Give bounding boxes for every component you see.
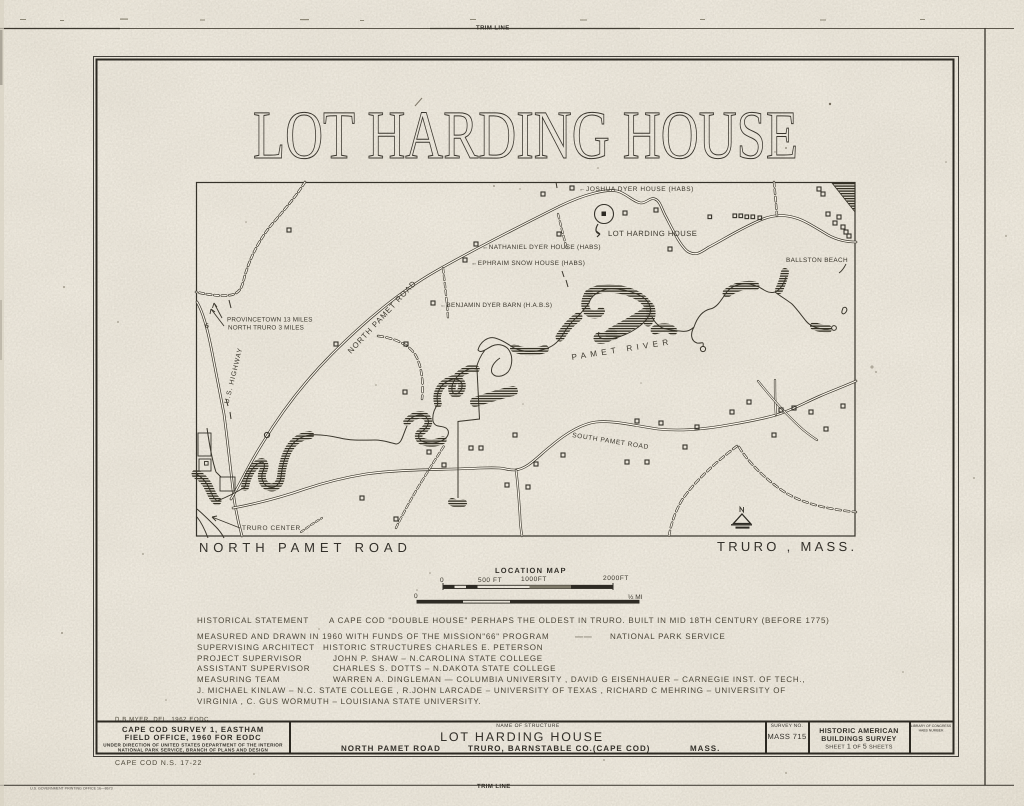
svg-text:BUILDINGS SURVEY: BUILDINGS SURVEY [821,736,897,743]
svg-text:VIRGINIA , C. GUS WORMUTH –: VIRGINIA , C. GUS WORMUTH – LOUISIANA ST… [197,697,481,706]
svg-text:HABS NUMBER: HABS NUMBER [919,729,944,733]
svg-text:0: 0 [440,577,444,584]
svg-text:TRURO, BARNSTABLE CO.(CAPE CO: TRURO, BARNSTABLE CO.(CAPE COD) [468,744,650,753]
svg-text:CAPE COD N.S. 17-22: CAPE COD N.S. 17-22 [115,760,202,767]
svg-text:J. MICHAEL KINLAW – N.C. STATE: J. MICHAEL KINLAW – N.C. STATE COLLEGE ,… [197,686,786,695]
svg-text:TRURO , MASS.: TRURO , MASS. [717,539,857,554]
svg-text:LOT HARDING HOUSE: LOT HARDING HOUSE [608,229,697,238]
svg-text:U.S. GOVERNMENT PRINTING OFFIC: U.S. GOVERNMENT PRINTING OFFICE 16—8673 [30,787,113,791]
svg-text:←JOSHUA DYER HOUSE (HABS): ←JOSHUA DYER HOUSE (HABS) [579,186,694,193]
svg-text:TRURO CENTER: TRURO CENTER [242,525,301,532]
svg-text:NATIONAL PARK SERVICE: NATIONAL PARK SERVICE [610,632,725,641]
svg-text:CHARLES S. DOTTS – N.DAKOTA ST: CHARLES S. DOTTS – N.DAKOTA STATE COLLEG… [333,664,556,673]
svg-text:NORTH PAMET ROAD: NORTH PAMET ROAD [199,540,412,555]
svg-text:NAME OF STRUCTURE: NAME OF STRUCTURE [496,723,560,729]
svg-text:SURVEY NO.: SURVEY NO. [771,723,803,729]
svg-text:ASSISTANT SUPERVISOR: ASSISTANT SUPERVISOR [197,664,310,673]
svg-text:SHEET 1 OF 5 SHEETS: SHEET 1 OF 5 SHEETS [825,744,893,751]
svg-text:MEASURING TEAM: MEASURING TEAM [197,675,280,684]
svg-text:MASS 715: MASS 715 [767,732,806,741]
svg-text:LIBRARY OF CONGRESS: LIBRARY OF CONGRESS [911,724,952,728]
svg-text:LOT HARDING HOUSE: LOT HARDING HOUSE [253,97,798,173]
svg-text:PROVINCETOWN 13 MILES: PROVINCETOWN 13 MILES [227,317,313,324]
svg-text:LOCATION MAP: LOCATION MAP [495,566,567,575]
svg-text:←EPHRAIM SNOW HOUSE (HABS): ←EPHRAIM SNOW HOUSE (HABS) [471,260,585,267]
svg-text:HISTORICAL STATEMENT: HISTORICAL STATEMENT [197,616,309,625]
svg-text:BALLSTON BEACH: BALLSTON BEACH [786,257,848,264]
svg-text:6: 6 [205,323,209,330]
svg-text:HISTORIC STRUCTURES CHARLES E.: HISTORIC STRUCTURES CHARLES E. PETERSON [323,643,543,652]
svg-text:WARREN A. DINGLEMAN — COLUMBIA: WARREN A. DINGLEMAN — COLUMBIA UNIVERSIT… [333,675,805,684]
svg-text:←BENJAMIN DYER BARN (H.A.B.S): ←BENJAMIN DYER BARN (H.A.B.S) [440,302,552,309]
svg-text:MEASURED AND DRAWN IN 1960 WIT: MEASURED AND DRAWN IN 1960 WITH FUNDS OF… [197,632,549,641]
svg-text:500 FT: 500 FT [478,577,502,584]
svg-text:NORTH TRURO 3 MILES: NORTH TRURO 3 MILES [228,325,304,332]
svg-text:——: —— [575,632,593,641]
svg-text:2000FT: 2000FT [603,575,629,582]
svg-text:HISTORIC AMERICAN: HISTORIC AMERICAN [819,728,899,735]
svg-text:TRIM LINE: TRIM LINE [476,25,510,32]
svg-text:A CAPE COD "DOUBLE HOUSE" PERH: A CAPE COD "DOUBLE HOUSE" PERHAPS THE OL… [329,616,830,625]
svg-text:TRIM LINE: TRIM LINE [477,783,511,790]
svg-text:1000FT: 1000FT [521,576,547,583]
svg-text:JOHN P. SHAW – N.CAROLINA STAT: JOHN P. SHAW – N.CAROLINA STATE COLLEGE [333,654,543,663]
svg-text:SUPERVISING ARCHITECT: SUPERVISING ARCHITECT [197,643,315,652]
svg-text:0: 0 [414,593,418,600]
svg-text:MASS.: MASS. [690,744,720,753]
svg-text:½ MI: ½ MI [628,594,643,601]
svg-text:←NATHANIEL DYER HOUSE (HABS): ←NATHANIEL DYER HOUSE (HABS) [482,244,601,251]
svg-text:NORTH PAMET ROAD: NORTH PAMET ROAD [341,744,441,753]
svg-text:LOT HARDING HOUSE: LOT HARDING HOUSE [440,730,604,744]
svg-text:FIELD OFFICE, 1960 FOR EODC: FIELD OFFICE, 1960 FOR EODC [125,733,262,742]
svg-text:PROJECT SUPERVISOR: PROJECT SUPERVISOR [197,654,302,663]
svg-text:NATIONAL PARK SERVICE, BRANCH: NATIONAL PARK SERVICE, BRANCH OF PLANS A… [118,748,269,753]
